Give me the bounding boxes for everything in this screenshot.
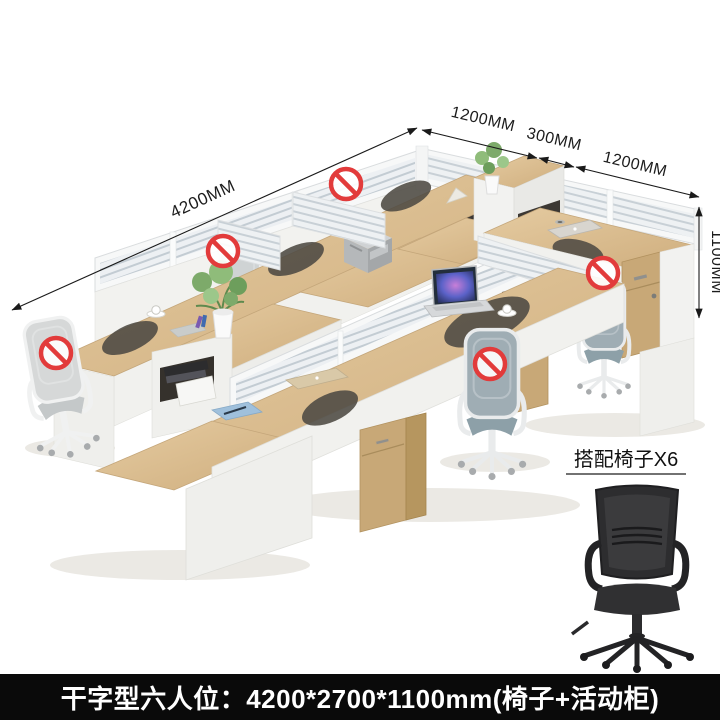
prohibition-icon [208, 236, 238, 266]
prohibition-icon [588, 258, 618, 288]
dim-label-depth-b: 300MM [525, 125, 583, 154]
prohibition-icon [331, 169, 361, 199]
product-title: 干字型六人位：4200*2700*1100mm(椅子+活动柜) [61, 679, 660, 716]
dim-label-depth-a: 1200MM [449, 104, 516, 135]
chair-inset: 搭配椅子X6 [566, 448, 694, 673]
prohibition-icon [41, 338, 71, 368]
title-banner: 干字型六人位：4200*2700*1100mm(椅子+活动柜) [0, 674, 720, 720]
prohibition-icon [475, 349, 505, 379]
black-office-chair [572, 486, 694, 674]
product-illustration: 4200MM 1200MM 300MM 1200MM 1100MM 搭配椅子X6 [0, 0, 720, 674]
chair-inset-caption: 搭配椅子X6 [574, 448, 678, 471]
dim-label-height: 1100MM [708, 230, 720, 294]
